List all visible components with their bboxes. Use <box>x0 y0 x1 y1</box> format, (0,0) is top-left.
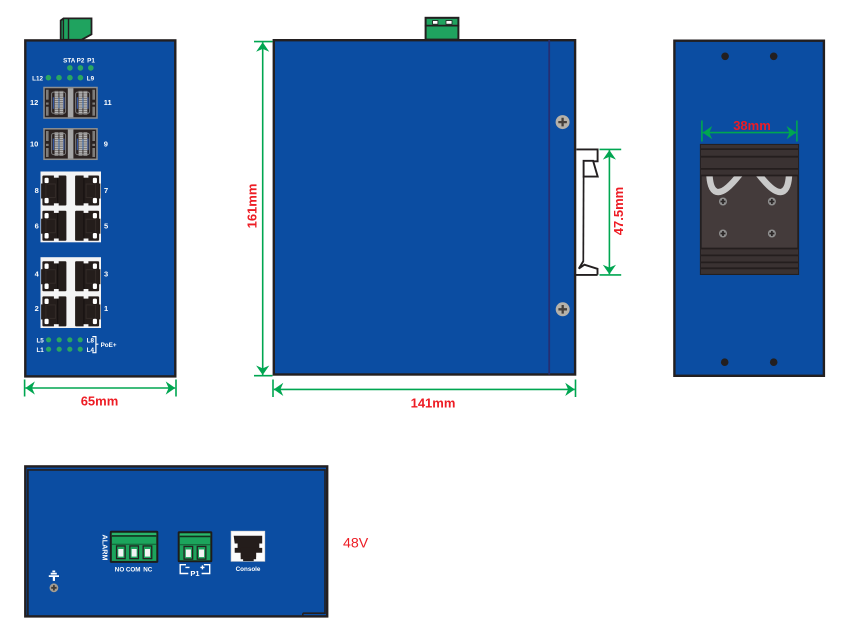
svg-text:3: 3 <box>104 270 108 279</box>
svg-text:161mm: 161mm <box>244 184 259 229</box>
svg-text:P2: P2 <box>77 57 85 64</box>
svg-text:L8: L8 <box>87 338 95 345</box>
svg-text:NC: NC <box>143 567 153 574</box>
svg-text:1: 1 <box>104 304 108 313</box>
svg-text:L1: L1 <box>36 347 44 354</box>
svg-text:141mm: 141mm <box>411 396 456 411</box>
svg-text:6: 6 <box>35 221 39 230</box>
svg-text:P1: P1 <box>190 569 199 578</box>
svg-text:38mm: 38mm <box>733 118 771 133</box>
svg-text:65mm: 65mm <box>81 394 119 409</box>
svg-text:12: 12 <box>30 98 38 107</box>
svg-text:7: 7 <box>104 186 108 195</box>
svg-text:STA: STA <box>63 57 76 64</box>
svg-text:P1: P1 <box>87 57 95 64</box>
svg-text:2: 2 <box>35 304 39 313</box>
svg-text:11: 11 <box>104 98 112 107</box>
svg-text:8: 8 <box>35 186 39 195</box>
svg-text:L9: L9 <box>87 75 95 82</box>
svg-text:9: 9 <box>104 139 108 148</box>
svg-text:L12: L12 <box>32 75 43 82</box>
svg-text:NO: NO <box>115 567 125 574</box>
svg-text:ALARM: ALARM <box>101 535 110 561</box>
svg-text:PoE+: PoE+ <box>101 342 117 349</box>
svg-text:Console: Console <box>236 566 261 573</box>
svg-text:5: 5 <box>104 221 108 230</box>
svg-text:L5: L5 <box>36 338 44 345</box>
svg-text:48V: 48V <box>343 535 369 551</box>
svg-text:10: 10 <box>30 139 38 148</box>
svg-text:COM: COM <box>126 567 141 574</box>
svg-text:47.5mm: 47.5mm <box>611 187 626 235</box>
